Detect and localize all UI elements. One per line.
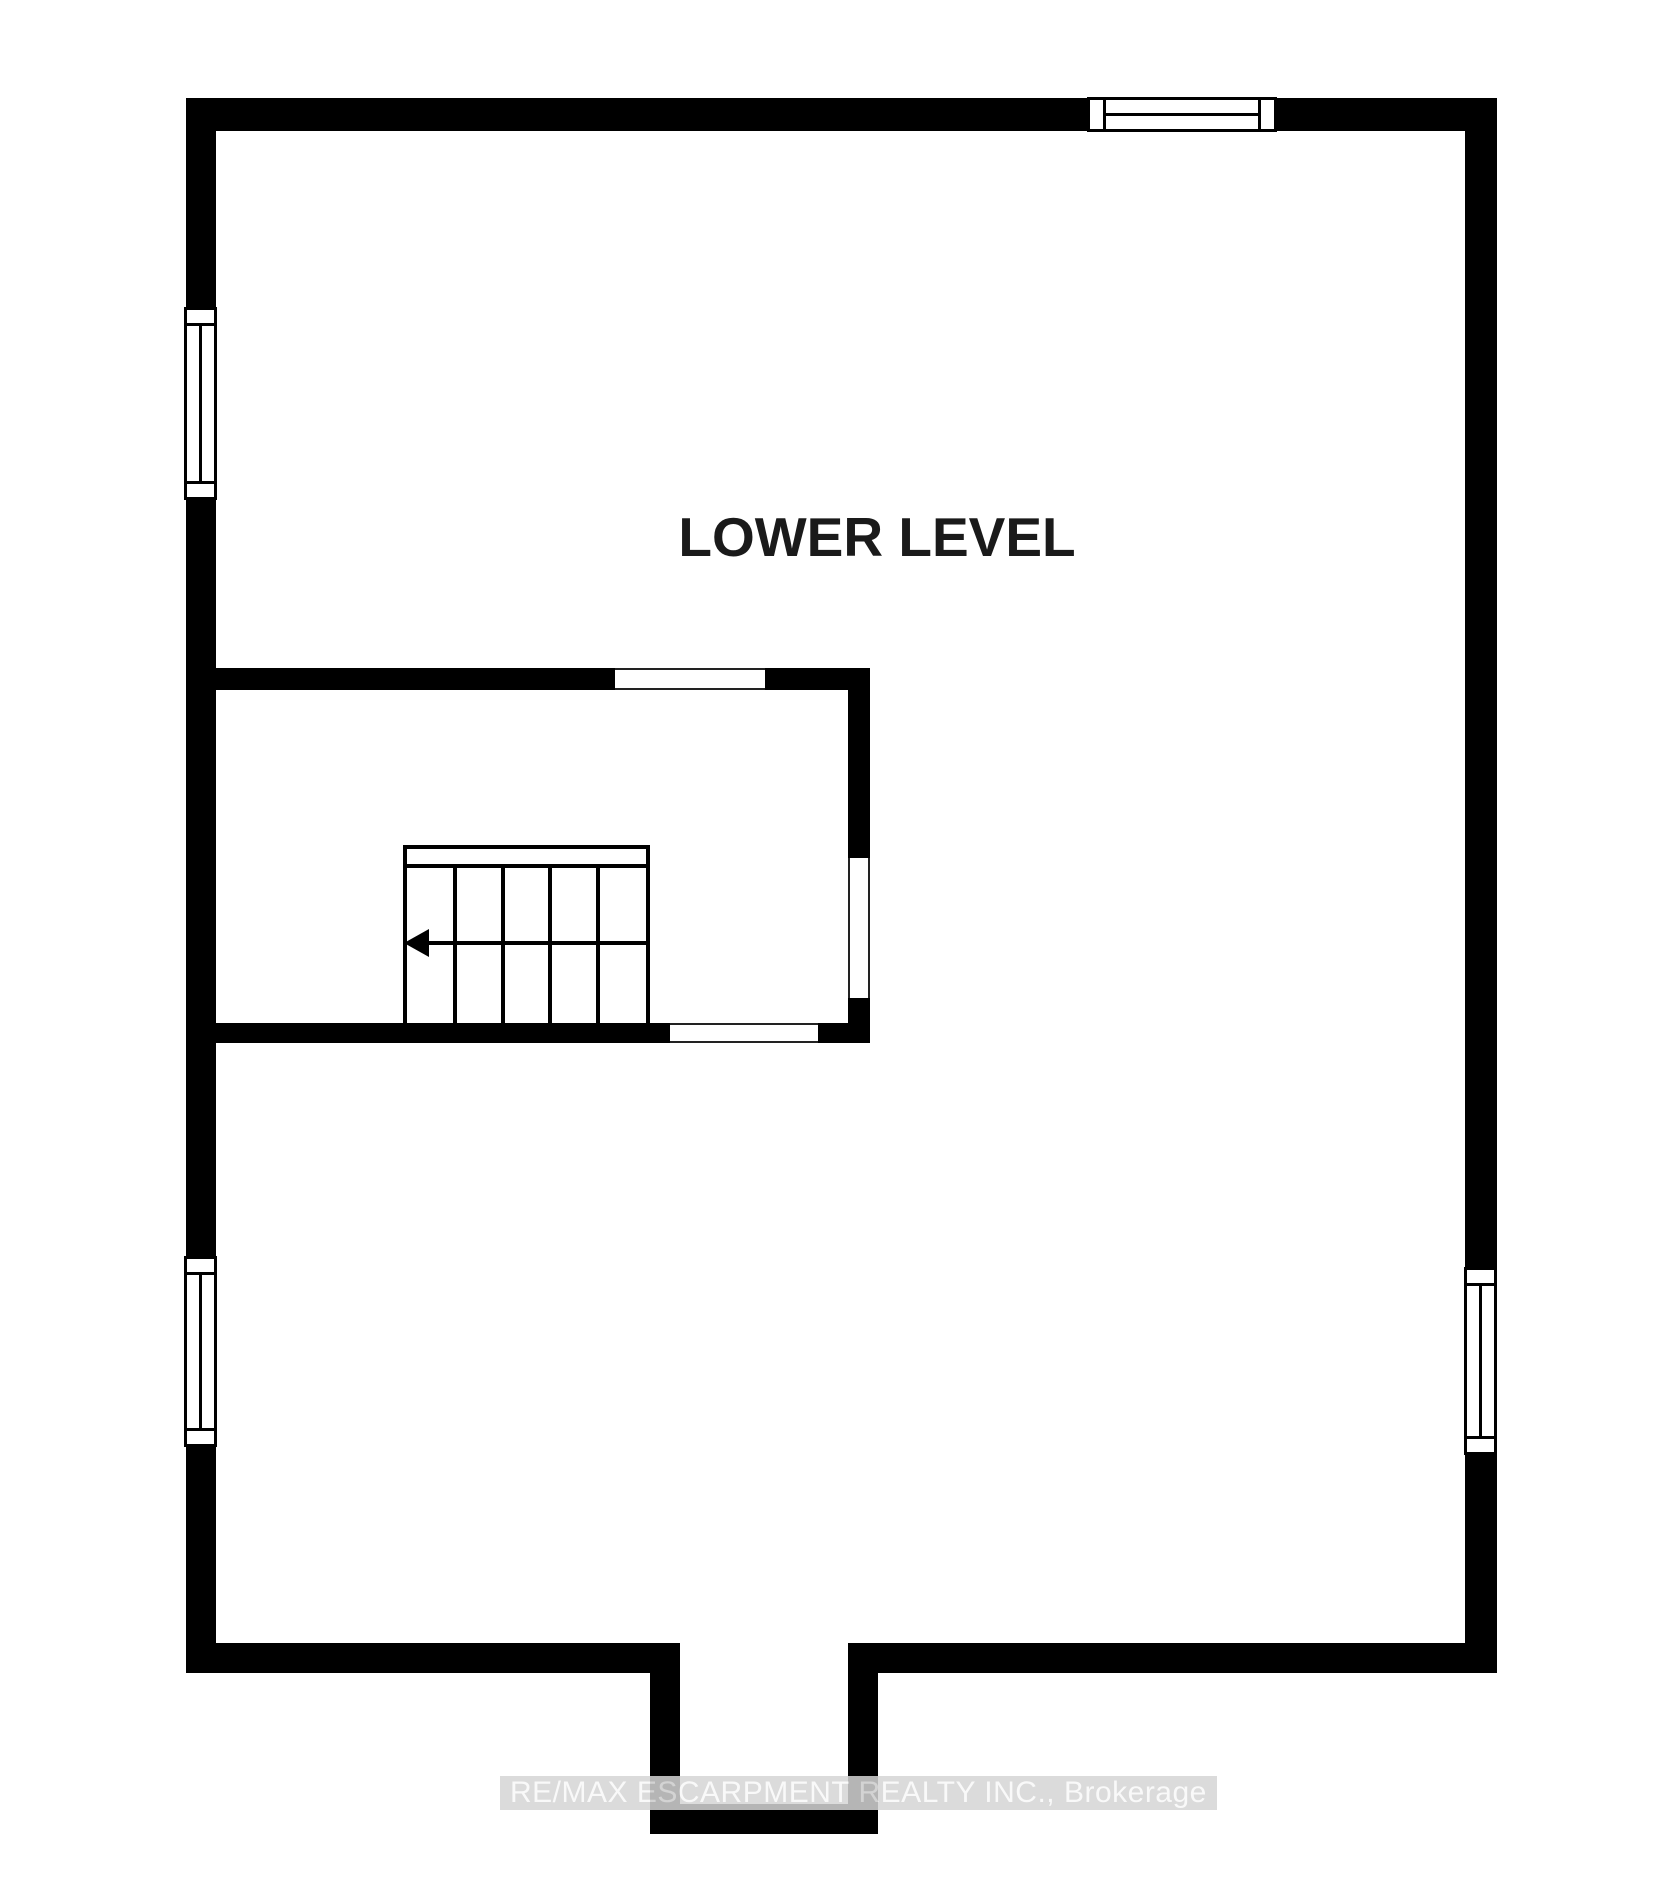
stair-tread-line <box>596 868 600 1023</box>
window-end-cap <box>187 481 214 497</box>
window-end-cap <box>1258 100 1274 129</box>
stair-tread-line <box>453 868 457 1023</box>
exterior-wall-bottom-right-segment <box>878 1643 1497 1673</box>
exterior-wall-right-upper-segment <box>1465 98 1497 1267</box>
window-end-cap <box>187 310 214 326</box>
stairwell-right-wall-upper-segment <box>848 668 870 858</box>
stair-tread-line <box>501 868 505 1023</box>
left-wall-lower-window <box>184 1256 217 1447</box>
stair-direction-arrow-left-icon <box>404 929 429 957</box>
window-end-cap <box>187 1259 214 1275</box>
window-end-cap <box>187 1428 214 1444</box>
floor-plan: LOWER LEVEL RE/MAX ESCARPMENT REALTY INC… <box>0 0 1680 1879</box>
stairwell-bottom-wall-right-segment <box>818 1023 870 1043</box>
exterior-wall-bottom-left-segment <box>186 1643 680 1673</box>
window-glass <box>1467 1286 1494 1436</box>
brokerage-watermark: RE/MAX ESCARPMENT REALTY INC., Brokerage <box>500 1776 1217 1810</box>
window-glass <box>187 326 214 481</box>
window-pane-line <box>199 1275 202 1428</box>
exterior-wall-top-left-segment <box>186 98 1087 131</box>
exterior-wall-left-lower-segment <box>186 1447 216 1673</box>
window-glass <box>187 1275 214 1428</box>
stair-direction-line <box>426 941 646 945</box>
stairwell-top-wall-left-segment <box>216 668 615 690</box>
exterior-wall-left-middle-segment <box>186 500 216 1256</box>
stair-tread-line <box>548 868 552 1023</box>
stairwell-right-opening <box>848 858 870 998</box>
staircase <box>403 845 650 1023</box>
window-end-cap <box>1090 100 1106 129</box>
window-end-cap <box>1467 1436 1494 1452</box>
top-wall-window <box>1087 97 1277 132</box>
level-title: LOWER LEVEL <box>678 510 1075 565</box>
window-pane-line <box>1106 113 1258 116</box>
exterior-wall-top-right-segment <box>1277 98 1497 131</box>
window-pane-line <box>1479 1286 1482 1436</box>
stairwell-bottom-opening <box>670 1023 818 1043</box>
left-wall-upper-window <box>184 307 217 500</box>
exterior-wall-left-upper-segment <box>186 98 216 307</box>
right-wall-window <box>1464 1267 1497 1455</box>
window-pane-line <box>199 326 202 481</box>
stairwell-bottom-wall-left-segment <box>216 1023 670 1043</box>
stairwell-top-opening <box>615 668 765 690</box>
window-glass <box>1106 100 1258 129</box>
window-end-cap <box>1467 1270 1494 1286</box>
stair-treads <box>407 868 646 1023</box>
exterior-wall-right-lower-segment <box>1465 1455 1497 1673</box>
